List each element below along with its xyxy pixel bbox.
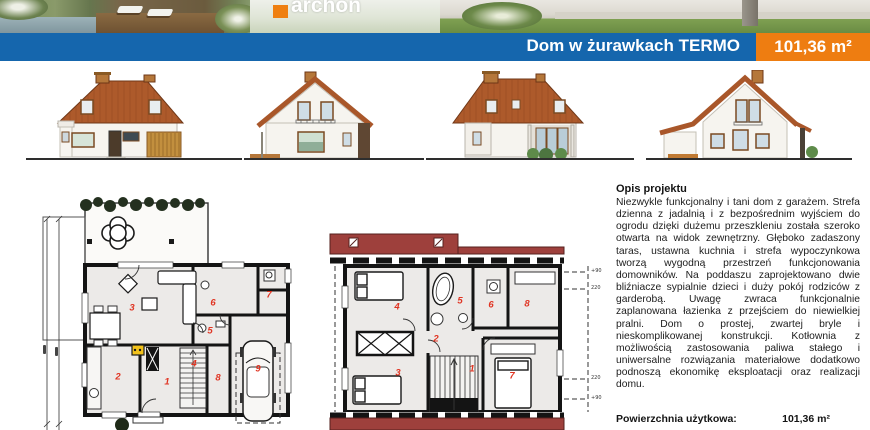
ground-line	[426, 158, 634, 160]
flower-bush	[462, 2, 542, 30]
project-title: Dom w żurawkach TERMO	[527, 36, 740, 56]
description-heading: Opis projektu	[616, 183, 860, 195]
room-number-ground-4: 4	[191, 359, 196, 370]
room-number-attic-4: 4	[394, 302, 399, 313]
room-number-attic-3: 3	[395, 368, 400, 379]
ground-floor-plan: 1 2 3 4 5 6 7 8 9	[30, 195, 313, 430]
rear-elevation-drawing	[428, 70, 633, 160]
ground-line	[244, 158, 424, 160]
height-mark: 220	[591, 285, 601, 291]
room-number-attic-5: 5	[457, 296, 462, 307]
height-mark: +90	[591, 268, 602, 274]
room-number-ground-5: 5	[207, 326, 212, 337]
right-gable-elevation-drawing	[648, 70, 820, 160]
dimension-text	[55, 347, 58, 356]
dimension-text	[43, 345, 46, 354]
attic-floor-plan: 1 2 3 4 5 6 7 8 +90 220 220 +90	[325, 228, 610, 430]
archon-logo-text: archon	[291, 0, 361, 18]
title-bar: Dom w żurawkach TERMO	[0, 33, 870, 61]
project-sheet: archon Dom w żurawkach TERMO 101,36 m²	[0, 0, 870, 430]
room-number-attic-2: 2	[433, 334, 438, 345]
deck-lounger	[117, 6, 144, 13]
front-elevation-drawing	[28, 70, 240, 160]
stone-wall	[555, 12, 870, 19]
description-body: Niezwykle funkcjonalny i tani dom z gara…	[616, 197, 860, 392]
room-number-ground-9: 9	[255, 364, 260, 375]
area-badge: 101,36 m²	[756, 33, 870, 61]
room-number-attic-7: 7	[509, 371, 514, 382]
room-number-attic-1: 1	[469, 364, 474, 375]
ground-line	[26, 158, 242, 160]
hero-photo-strip: archon	[0, 0, 870, 33]
usable-area-label: Powierzchnia użytkowa:	[616, 413, 737, 425]
archon-logo-mark	[273, 5, 288, 18]
room-number-ground-2: 2	[115, 372, 120, 383]
height-mark: +90	[591, 395, 602, 401]
room-number-attic-8: 8	[524, 299, 529, 310]
deck-lounger	[147, 9, 174, 16]
room-number-ground-1: 1	[164, 377, 169, 388]
height-mark: 220	[591, 375, 601, 381]
ground-line	[646, 158, 852, 160]
left-gable-elevation-drawing	[246, 70, 418, 160]
room-number-ground-6: 6	[210, 298, 215, 309]
wooden-deck	[96, 13, 224, 33]
room-number-attic-6: 6	[488, 300, 493, 311]
room-number-ground-3: 3	[129, 303, 134, 314]
fence-pillar	[742, 0, 758, 26]
usable-area-value: 101,36 m²	[782, 413, 830, 425]
room-number-ground-8: 8	[215, 373, 220, 384]
usable-area-row: Powierzchnia użytkowa: 101,36 m²	[616, 413, 830, 425]
room-number-ground-7: 7	[266, 290, 271, 301]
